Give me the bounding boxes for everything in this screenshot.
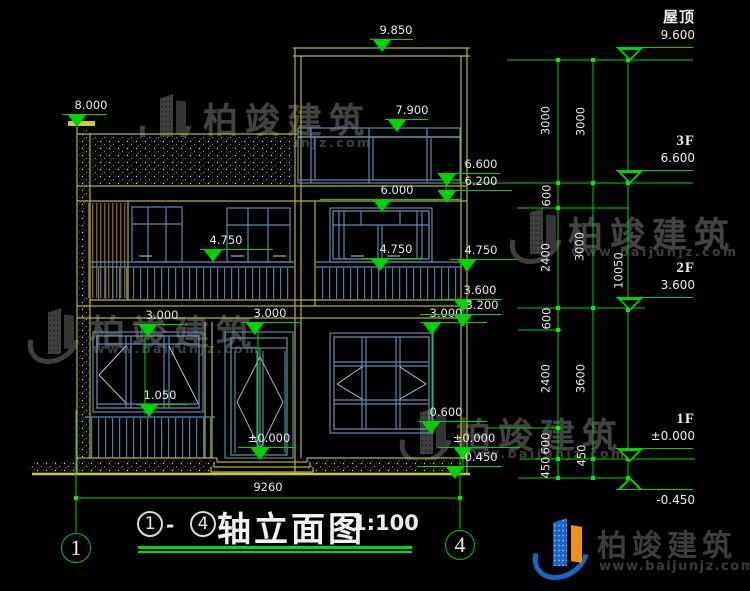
floor-name: 2F [595,261,695,276]
elevation-mark-triangle [388,120,406,132]
title-dash: - [166,513,174,537]
elevation-mark-triangle [140,405,158,417]
drawing-title: 轴立面图 [217,502,365,551]
elevation-value: 3.000 [117,308,207,323]
elevation-value: 6.200 [436,174,526,189]
elevation-value: 7.900 [367,103,457,118]
floor-mark-triangle [617,449,643,462]
elevation-mark-triangle [438,191,456,203]
floor-mark-triangle [617,48,643,61]
elevation-value: 8.000 [46,98,136,113]
annotation-layer: 8.0009.8507.9006.0004.7504.7503.0003.000… [0,0,750,591]
footer-logo-icon [533,516,595,582]
floor-value: 9.600 [595,28,695,43]
floor-value: 3.600 [595,278,695,293]
title-axis-start-bubble: 1 [137,511,163,537]
elevation-mark-triangle [371,259,389,271]
floor-mark-triangle [617,171,643,184]
elevation-value: -0.450 [434,450,524,465]
floor-value: ±0.000 [595,429,695,444]
elevation-value: 9.850 [351,23,441,38]
dim-label: 450 [575,411,590,501]
floor-name: 1F [595,412,695,427]
elevation-mark-triangle [446,467,464,479]
overall-width-dim: 9260 [223,480,313,495]
floor-name: 屋顶 [595,11,695,26]
elevation-value: ±0.000 [429,431,519,446]
elevation-mark-triangle [373,40,391,52]
elevation-value: 4.750 [436,243,526,258]
dim-label: 10050 [612,226,627,316]
elevation-mark-triangle [139,325,157,337]
axis-bubble: 4 [445,530,475,560]
elevation-mark-triangle [454,315,472,327]
elevation-value: 4.750 [351,242,441,257]
dim-label: 3000 [573,202,588,292]
elevation-mark-triangle [204,250,222,262]
elevation-value: 3.200 [437,298,527,313]
elevation-value: 3.600 [435,283,525,298]
cad-elevation-screenshot: 柏竣建筑 www.baijunjz.com 柏竣建筑 www.baijunjz.… [0,0,750,591]
title-underline [138,546,412,549]
floor-mark-triangle [617,477,643,490]
elevation-value: 6.000 [352,183,442,198]
footer-logo-url: www.baijunjz.com [599,559,750,574]
floor-name: 3F [595,134,695,149]
dim-label: 450 [539,423,554,513]
elevation-mark-triangle [458,260,476,272]
elevation-mark-triangle [373,200,391,212]
dim-label: 3000 [574,77,589,167]
title-underline [138,551,412,553]
elevation-mark-triangle [251,448,269,460]
elevation-mark-triangle [423,323,441,335]
floor-value: -0.450 [595,493,695,508]
elevation-mark-triangle [68,115,86,127]
elevation-value: 6.600 [436,157,526,172]
elevation-value: 0.600 [401,405,491,420]
elevation-value: 4.750 [181,233,271,248]
elevation-value: 1.050 [115,388,205,403]
title-axis-end-bubble: 4 [190,511,216,537]
elevation-value: 3.000 [225,306,315,321]
axis-bubble: 1 [61,533,91,563]
elevation-mark-line [438,447,520,448]
drawing-scale: 1:100 [352,511,419,535]
elevation-value: ±0.000 [224,431,314,446]
elevation-mark-triangle [246,323,264,335]
floor-value: 6.600 [595,151,695,166]
